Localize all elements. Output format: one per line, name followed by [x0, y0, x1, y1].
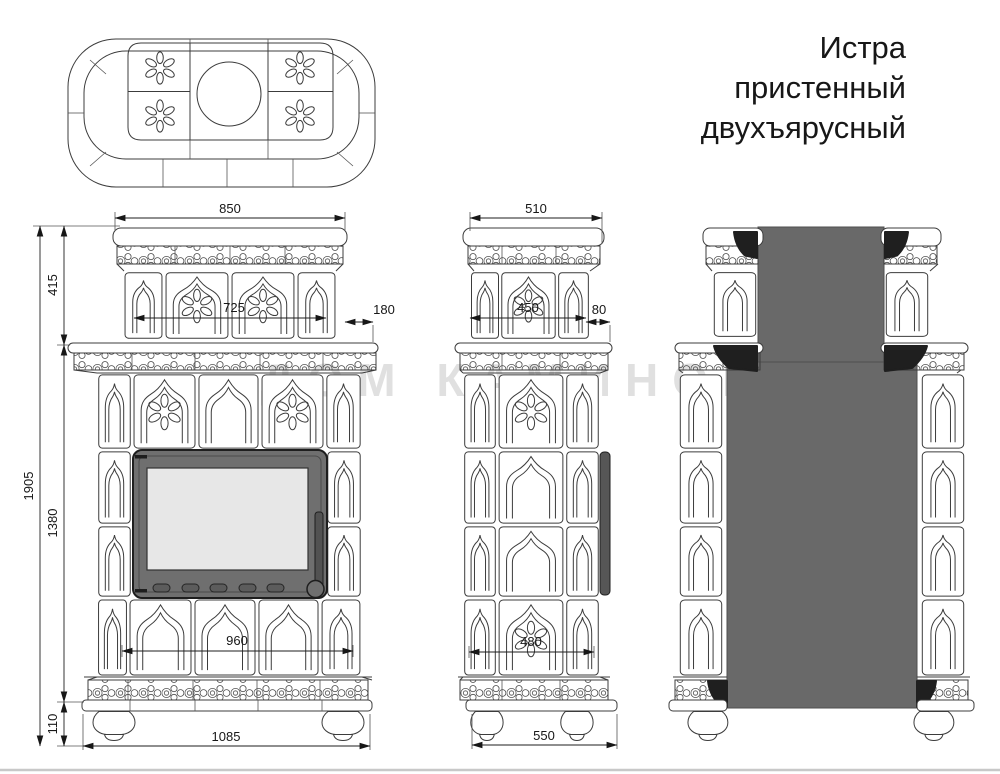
door-hinge-bottom — [135, 589, 147, 593]
door-hinge-top — [135, 455, 147, 459]
dim-side-rear-offset: 80 — [592, 302, 606, 317]
front-upper-cornice — [113, 228, 347, 246]
dim-front-total-height: 1905 — [21, 472, 36, 501]
door-knob — [307, 581, 324, 598]
firebox-door-edge — [600, 452, 610, 595]
front-lower-cornice — [68, 343, 378, 353]
rear-base-left — [669, 700, 727, 711]
technical-drawing: ДОМ КАМИНОВ Истра пристенный двухъярусны… — [0, 0, 1000, 774]
chimney-upper — [758, 227, 884, 363]
dim-side-upper-width: 510 — [525, 201, 547, 216]
blueprint-page: ДОМ КАМИНОВ Истра пристенный двухъярусны… — [0, 0, 1000, 774]
front-right-foot — [322, 712, 364, 741]
dim-front-upper-width: 850 — [219, 201, 241, 216]
dim-front-body-height: 1380 — [45, 509, 60, 538]
masonry-core — [727, 362, 917, 708]
side-front-foot — [471, 712, 503, 741]
door-handle — [315, 512, 323, 590]
side-base — [466, 700, 617, 711]
rear-right-foot — [914, 712, 954, 741]
top-plan-view — [68, 39, 375, 187]
title-line-1: Истра — [820, 30, 907, 65]
firebox-door — [133, 450, 327, 598]
front-base — [82, 700, 372, 711]
front-left-foot — [93, 712, 135, 741]
dim-front-upper-body-width: 725 — [223, 300, 245, 315]
dim-front-lower-body-width: 960 — [226, 633, 248, 648]
title-line-2: пристенный — [734, 70, 906, 105]
drawing-title: Истра пристенный двухъярусный — [701, 30, 907, 145]
rear-view — [669, 227, 974, 741]
dim-side-lower-body-width: 480 — [520, 634, 542, 649]
dim-front-base-width: 1085 — [212, 729, 241, 744]
dim-side-upper-body-width: 450 — [517, 300, 539, 315]
rear-base-right — [917, 700, 974, 711]
door-glass — [147, 468, 308, 570]
side-upper-cornice — [463, 228, 604, 246]
title-line-3: двухъярусный — [701, 110, 906, 145]
side-lower-cornice — [455, 343, 612, 353]
rear-left-foot — [688, 712, 728, 741]
dim-front-tier-height: 415 — [45, 274, 60, 296]
dim-front-plinth-height: 110 — [45, 714, 60, 735]
dim-side-base-width: 550 — [533, 728, 555, 743]
side-rear-foot — [561, 712, 593, 741]
dim-front-rear-offset: 180 — [373, 302, 395, 317]
chimney-opening — [197, 62, 261, 126]
